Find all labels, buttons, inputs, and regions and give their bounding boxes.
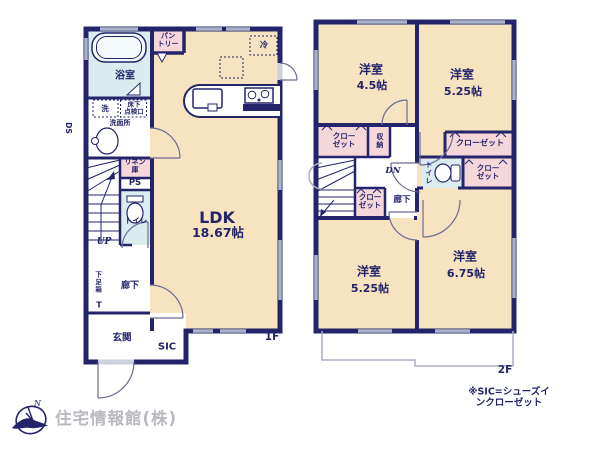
floorplan-drawing: N [0,0,600,450]
entrance-door-swing [98,362,134,398]
linen-area [120,158,150,178]
burner-left [248,91,256,99]
floor1-plan [86,29,297,398]
toilet2-bowl [435,164,451,182]
burner-small [258,99,261,102]
washbasin-tap [92,138,99,145]
pantry-area [152,29,184,53]
toilet2-tank [451,165,460,181]
logo-n-label: N [33,399,42,408]
counter-edge [243,104,280,111]
burner-right [261,90,269,98]
company-logo: N [12,399,49,437]
floor2-plan [309,22,514,366]
closet-nw-area [318,127,368,157]
kitchen-sink-nub [208,104,217,111]
storage-area [368,127,390,157]
toilet1-tank [127,196,143,202]
entrance-area [86,313,186,362]
ps-area [120,178,150,190]
closet-ne-area [445,132,514,157]
kitchen-side-door-swing [280,63,297,80]
balcony-outline [322,331,513,366]
bathtub [92,33,146,62]
floorplan-page: N パン トリー 冷 浴室 洗 床下 点検口 洗面所 DS リネン 庫 PS ト… [0,0,600,450]
vestibule-area [390,125,417,157]
toilet1-bowl [127,203,143,223]
washbasin [96,128,118,154]
